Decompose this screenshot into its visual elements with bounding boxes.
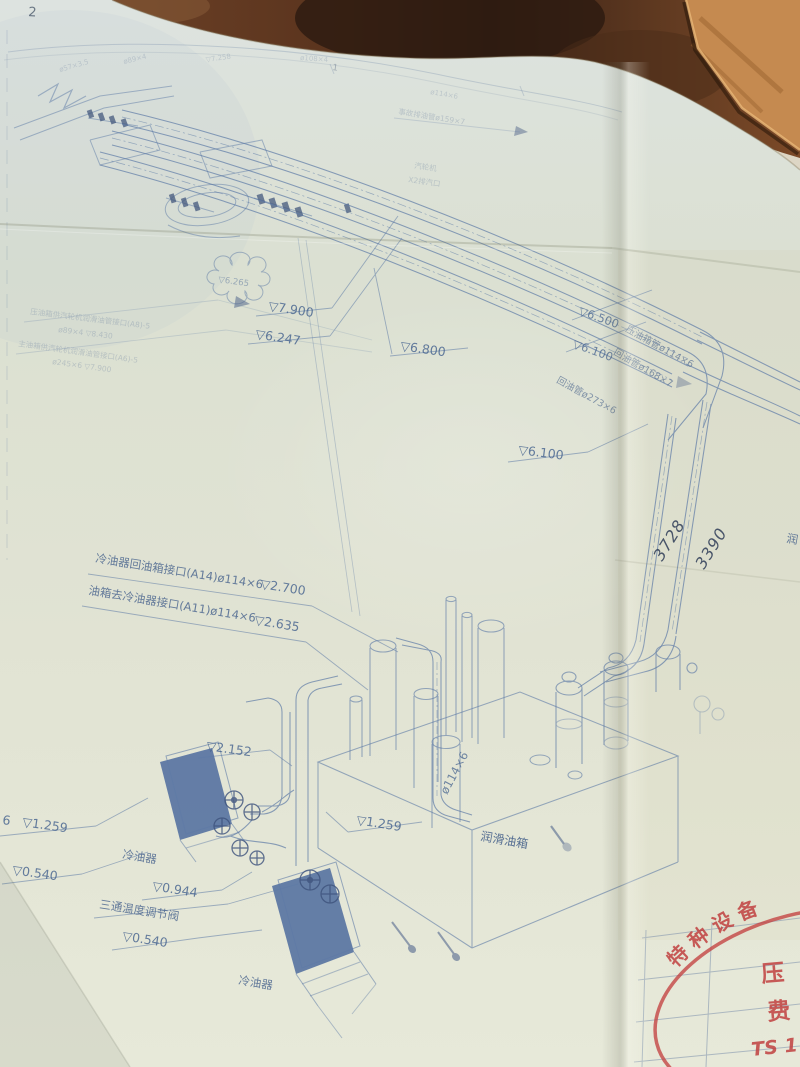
blueprint-photo: 2 1 (0, 0, 800, 1067)
stamp-char-ya: 压 (760, 960, 785, 988)
photo-canvas: 2 1 (0, 0, 800, 1067)
stamp-char-fei: 费 (766, 998, 791, 1026)
sheet-corner-number: 2 (28, 5, 37, 21)
cut-off-right-char: 润 (785, 531, 799, 547)
